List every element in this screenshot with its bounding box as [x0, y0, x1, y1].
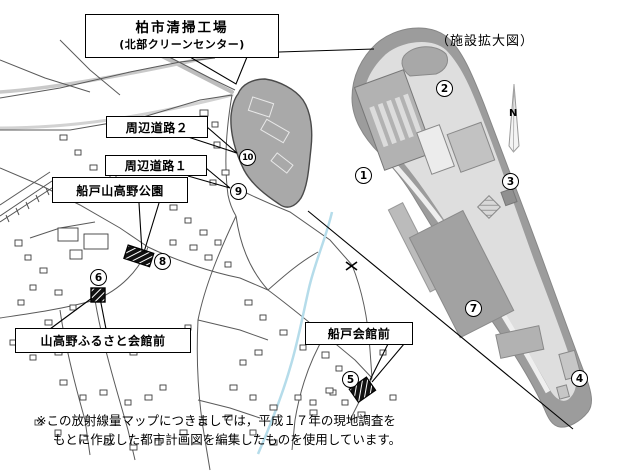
park-label: 船戸山高野公園 [52, 177, 188, 203]
plant-subtitle: (北部クリーンセンター) [119, 38, 245, 53]
funado-hall-label: 船戸会館前 [305, 322, 413, 345]
measurement-point-9: 9 [230, 183, 247, 200]
measurement-point-6: 6 [90, 269, 107, 286]
measurement-point-1: 1 [355, 167, 372, 184]
hall-label: 山高野ふるさと会館前 [15, 328, 191, 353]
hall-survey-area [91, 288, 105, 302]
measurement-point-5: 5 [342, 371, 359, 388]
park-survey-area [124, 245, 154, 267]
road2-label: 周辺道路２ [106, 116, 208, 138]
plant-title: 柏市清掃工場 [136, 19, 229, 37]
main-map [0, 40, 396, 470]
radiation-map-page: 柏市清掃工場 (北部クリーンセンター) （施設拡大図） 周辺道路２ 周辺道路１ … [0, 0, 620, 476]
bridge-icon [346, 262, 357, 270]
road1-label: 周辺道路１ [105, 155, 207, 176]
measurement-point-4: 4 [571, 370, 588, 387]
north-label: N [509, 108, 517, 119]
roads [0, 40, 372, 470]
enlarged-view-caption: （施設拡大図） [436, 30, 534, 49]
upper-building [402, 47, 448, 76]
plant-title-box: 柏市清掃工場 (北部クリーンセンター) [85, 14, 279, 58]
measurement-point-7: 7 [465, 300, 482, 317]
measurement-point-2: 2 [436, 80, 453, 97]
map-graphics [0, 0, 620, 476]
footnote-line1: ※この放射線量マップにつきましては，平成１７年の現地調査を [36, 411, 456, 430]
footnote: ※この放射線量マップにつきましては，平成１７年の現地調査を もとに作成した都市計… [36, 411, 456, 449]
measurement-point-3: 3 [502, 173, 519, 190]
footnote-line2: もとに作成した都市計画図を編集したものを使用しています。 [36, 430, 456, 449]
facility-enlarged-view [352, 28, 591, 427]
measurement-point-8: 8 [154, 253, 171, 270]
measurement-point-10: 10 [239, 149, 256, 166]
